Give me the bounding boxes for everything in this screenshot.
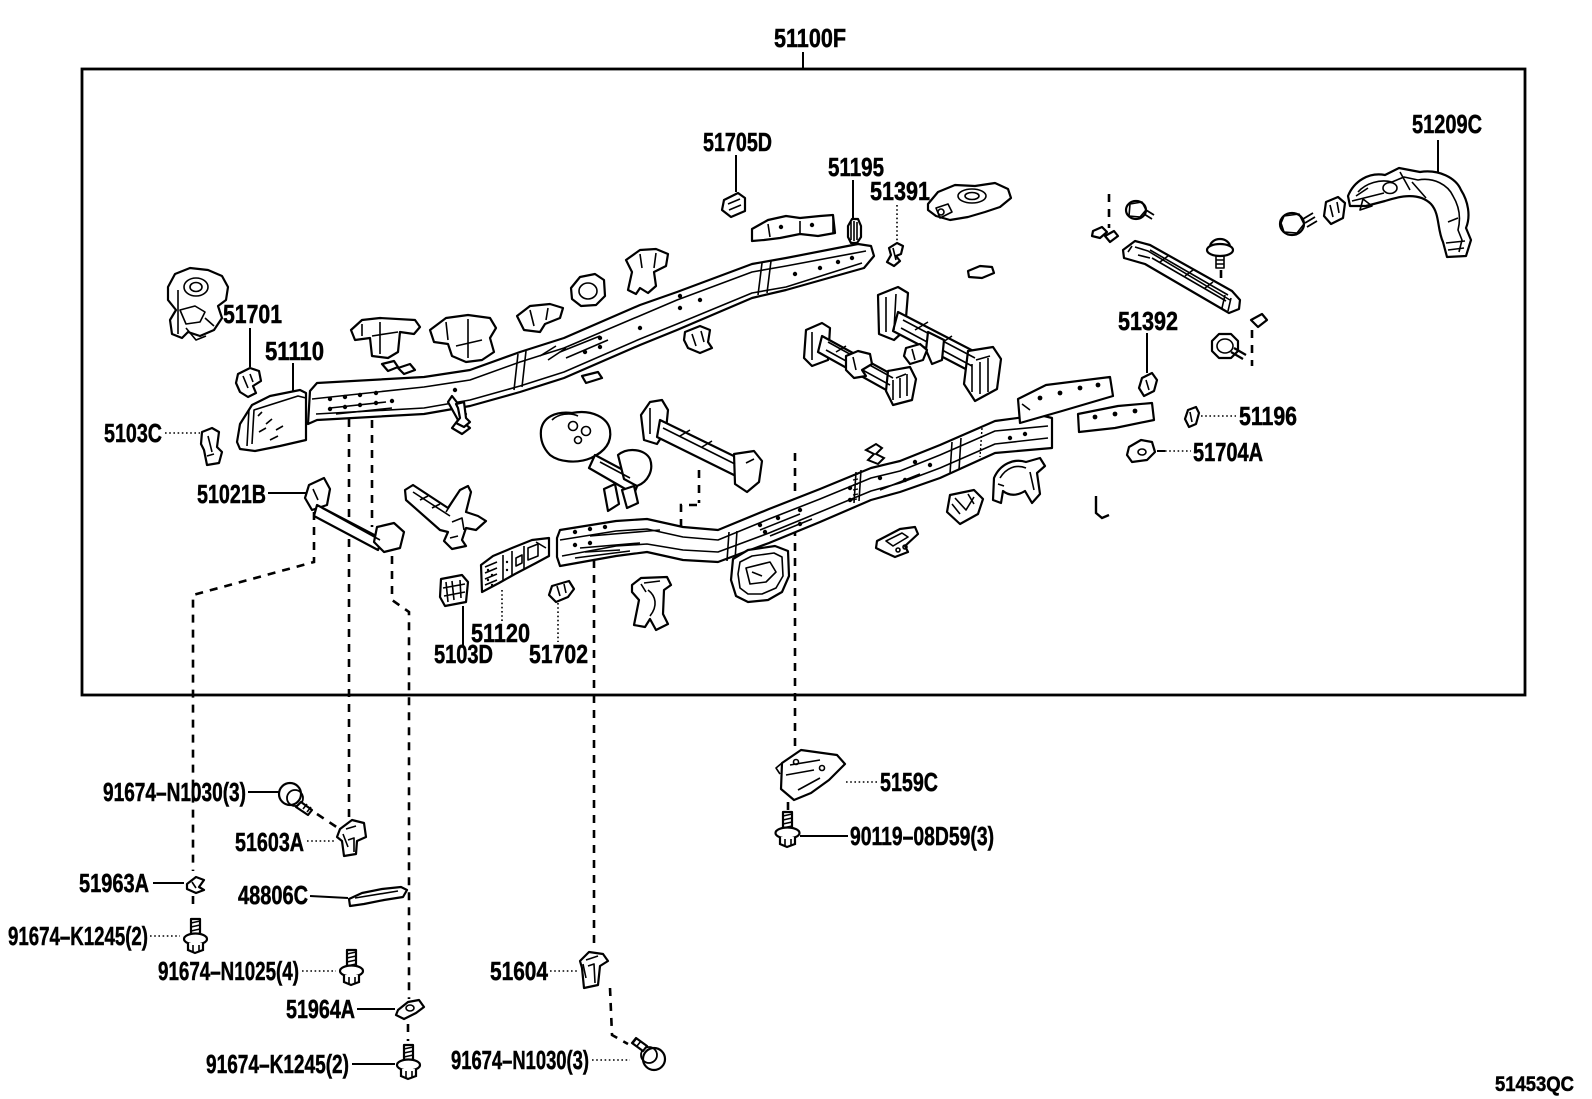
svg-text:51392: 51392	[1118, 306, 1178, 336]
svg-text:51603A: 51603A	[235, 827, 304, 857]
svg-text:91674–N1030(3): 91674–N1030(3)	[451, 1045, 589, 1075]
svg-text:51964A: 51964A	[286, 994, 355, 1024]
svg-text:48806C: 48806C	[238, 880, 308, 910]
svg-text:91674–K1245(2): 91674–K1245(2)	[206, 1049, 349, 1079]
svg-text:51110: 51110	[265, 336, 324, 366]
svg-text:51604: 51604	[490, 956, 548, 986]
svg-text:51705D: 51705D	[703, 127, 772, 157]
svg-text:51453QC: 51453QC	[1495, 1073, 1574, 1096]
svg-text:90119–08D59(3): 90119–08D59(3)	[850, 821, 994, 851]
svg-text:51196: 51196	[1239, 401, 1297, 431]
svg-text:51100F: 51100F	[774, 23, 846, 53]
svg-text:5159C: 5159C	[880, 767, 938, 797]
svg-text:51701: 51701	[223, 299, 282, 329]
svg-text:51021B: 51021B	[197, 479, 266, 509]
svg-text:91674–K1245(2): 91674–K1245(2)	[8, 921, 148, 951]
svg-text:5103C: 5103C	[104, 418, 162, 448]
svg-text:51704A: 51704A	[1193, 437, 1263, 467]
svg-text:91674–N1030(3): 91674–N1030(3)	[103, 777, 246, 807]
svg-text:51209C: 51209C	[1412, 109, 1482, 139]
svg-text:51391: 51391	[870, 176, 930, 206]
svg-text:91674–N1025(4): 91674–N1025(4)	[158, 956, 299, 986]
svg-text:51702: 51702	[529, 639, 588, 669]
svg-text:51963A: 51963A	[79, 868, 149, 898]
